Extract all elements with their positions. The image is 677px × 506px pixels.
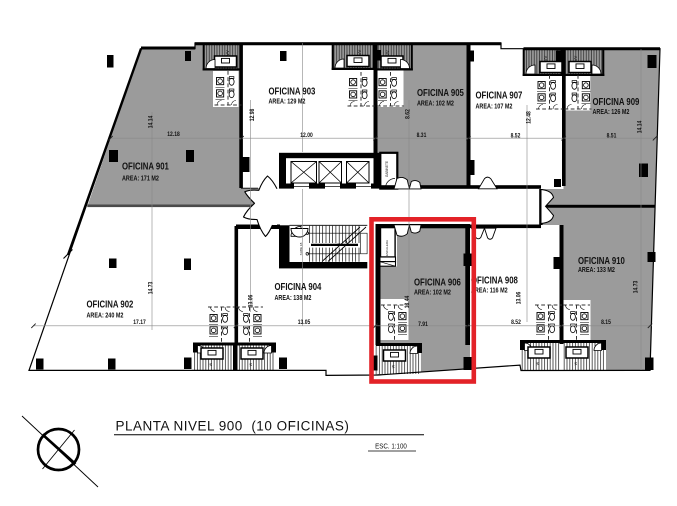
svg-text:14.73: 14.73 [148, 282, 155, 294]
svg-text:AREA: 138 M2: AREA: 138 M2 [275, 294, 312, 302]
svg-text:12.98: 12.98 [250, 109, 257, 121]
svg-text:8.52: 8.52 [511, 319, 521, 326]
svg-text:13.06: 13.06 [516, 292, 523, 304]
svg-text:W: W [536, 361, 540, 365]
svg-text:OFICINA 910: OFICINA 910 [578, 255, 625, 266]
svg-text:VV: VV [543, 56, 548, 62]
svg-text:AREA: 129 M2: AREA: 129 M2 [269, 98, 306, 106]
svg-text:OFICINA 903: OFICINA 903 [269, 86, 316, 97]
svg-text:OFICINA 907: OFICINA 907 [476, 90, 523, 101]
svg-text:12.48: 12.48 [526, 111, 533, 123]
svg-text:12.00: 12.00 [300, 132, 312, 139]
svg-text:VV: VV [357, 50, 362, 56]
svg-text:13.05: 13.05 [298, 320, 311, 327]
svg-text:AREA: 240 M2: AREA: 240 M2 [87, 312, 124, 320]
svg-text:13.44: 13.44 [405, 295, 412, 308]
svg-text:OFICINA 904: OFICINA 904 [275, 281, 322, 292]
svg-text:VV: VV [385, 50, 390, 56]
svg-text:W: W [392, 364, 396, 368]
svg-text:OFICINA 906: OFICINA 906 [414, 277, 461, 288]
svg-text:AREA: 107 M2: AREA: 107 M2 [476, 103, 513, 111]
svg-text:VV: VV [225, 50, 230, 56]
svg-text:8.62: 8.62 [405, 109, 412, 119]
svg-text:AREA: 171 M2: AREA: 171 M2 [122, 175, 159, 183]
svg-text:AREA: 133 M2: AREA: 133 M2 [578, 266, 615, 274]
svg-text:14.14: 14.14 [637, 120, 644, 133]
svg-text:AREA: 102 M2: AREA: 102 M2 [414, 289, 451, 297]
svg-text:OFICINA 909: OFICINA 909 [593, 96, 640, 107]
svg-text:AREA: 116 M2: AREA: 116 M2 [471, 287, 508, 295]
svg-text:14.73: 14.73 [633, 281, 640, 293]
svg-text:W: W [574, 361, 578, 365]
svg-text:VV: VV [573, 56, 578, 62]
svg-text:17.17: 17.17 [133, 319, 145, 326]
svg-text:AREA: 126 M2: AREA: 126 M2 [593, 108, 630, 116]
svg-text:GABINETE: GABINETE [385, 161, 389, 177]
svg-text:8.15: 8.15 [601, 319, 611, 326]
svg-text:13.06: 13.06 [248, 295, 255, 307]
svg-text:OFICINA 908: OFICINA 908 [471, 275, 518, 286]
svg-text:OFICINA 902: OFICINA 902 [87, 299, 134, 310]
svg-text:W: W [249, 362, 253, 366]
svg-text:7.91: 7.91 [418, 322, 428, 329]
svg-text:AREA: 102 M2: AREA: 102 M2 [417, 100, 454, 108]
svg-text:8.31: 8.31 [417, 133, 427, 140]
svg-text:8.52: 8.52 [511, 133, 521, 140]
svg-text:W: W [209, 362, 213, 366]
svg-text:12.18: 12.18 [167, 132, 179, 139]
svg-text:14.14: 14.14 [148, 115, 155, 128]
svg-text:PLANTA NIVEL 900 (10 OFICINAS: PLANTA NIVEL 900 (10 OFICINAS) [116, 419, 350, 434]
svg-text:8.51: 8.51 [607, 133, 617, 140]
svg-text:ESC. 1:100: ESC. 1:100 [375, 443, 407, 451]
svg-text:OFICINA 901: OFICINA 901 [122, 161, 169, 172]
svg-text:ESCALERA: ESCALERA [385, 240, 389, 256]
svg-text:OFICINA 905: OFICINA 905 [417, 87, 464, 98]
